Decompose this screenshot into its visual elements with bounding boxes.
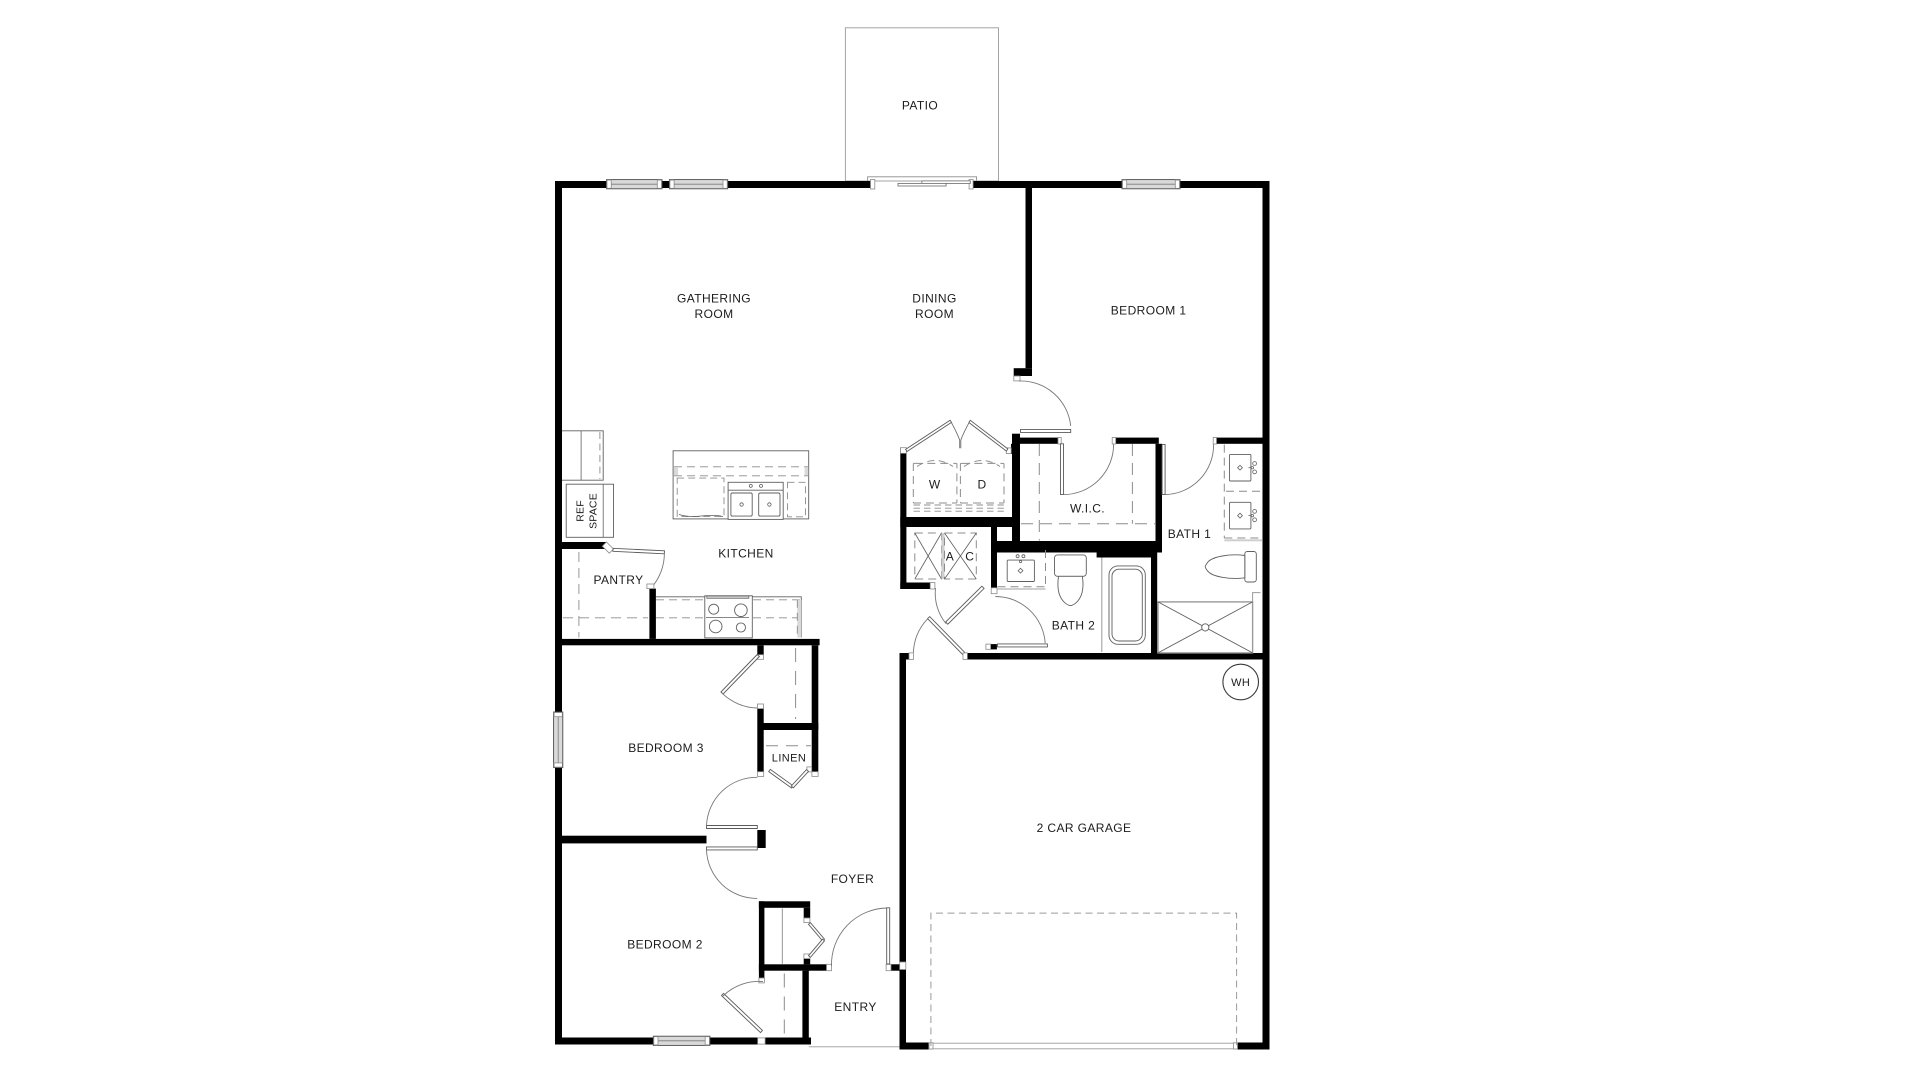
svg-text:C: C [965, 550, 974, 564]
svg-text:KITCHEN: KITCHEN [718, 547, 773, 561]
svg-text:2 CAR GARAGE: 2 CAR GARAGE [1037, 821, 1132, 835]
svg-text:PATIO: PATIO [902, 99, 938, 113]
svg-text:ROOM: ROOM [695, 307, 734, 321]
svg-text:PANTRY: PANTRY [594, 573, 644, 587]
svg-text:BATH 1: BATH 1 [1168, 527, 1212, 541]
svg-text:BEDROOM 3: BEDROOM 3 [628, 741, 704, 755]
svg-text:BATH 2: BATH 2 [1052, 619, 1096, 633]
svg-text:REF: REF [575, 500, 587, 522]
svg-text:FOYER: FOYER [831, 872, 874, 886]
svg-text:ROOM: ROOM [915, 307, 954, 321]
svg-text:LINEN: LINEN [772, 753, 806, 765]
svg-text:SPACE: SPACE [588, 493, 600, 529]
svg-text:DINING: DINING [912, 292, 956, 306]
svg-text:W: W [929, 478, 941, 492]
svg-text:GATHERING: GATHERING [677, 292, 751, 306]
svg-text:ENTRY: ENTRY [834, 1000, 876, 1014]
svg-text:BEDROOM 1: BEDROOM 1 [1111, 304, 1187, 318]
svg-text:W.I.C.: W.I.C. [1070, 502, 1105, 516]
svg-text:BEDROOM 2: BEDROOM 2 [627, 938, 703, 952]
svg-text:WH: WH [1231, 677, 1250, 689]
svg-text:D: D [977, 478, 986, 492]
svg-text:A: A [946, 550, 954, 564]
